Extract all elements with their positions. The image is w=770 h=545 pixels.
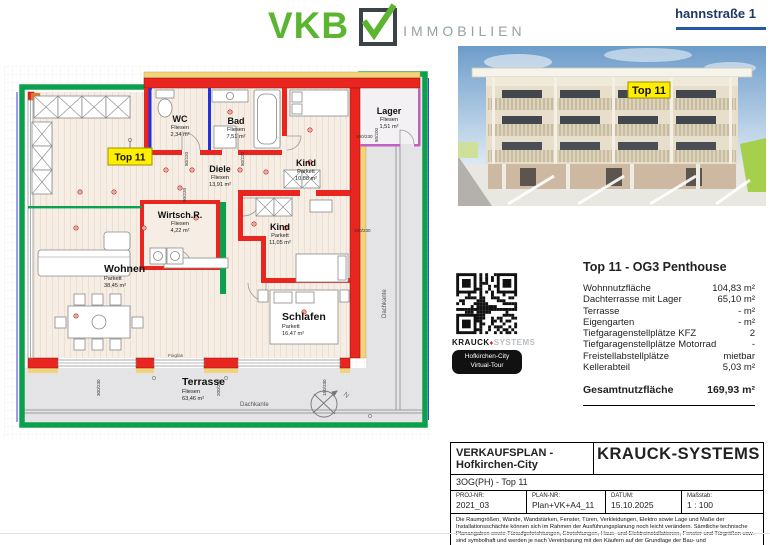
svg-text:80/220: 80/220: [182, 188, 187, 202]
title-block: VERKAUFSPLAN - Hofkirchen-City KRAUCK-SY…: [450, 442, 764, 545]
virtual-tour-badge[interactable]: Hofkirchen-City Virtual-Tour: [452, 350, 522, 374]
detail-row: Tiefgaragenstellplätze KFZ2: [583, 328, 755, 339]
svg-text:Wirtsch.R.: Wirtsch.R.: [158, 210, 202, 220]
vkb-logo-text: VKB: [268, 6, 349, 46]
svg-text:Parkett: Parkett: [271, 233, 289, 239]
plan-subtitle: 3OG(PH) - Top 11: [451, 475, 763, 491]
svg-text:Parkett: Parkett: [104, 276, 122, 282]
svg-text:Fliesen: Fliesen: [211, 175, 229, 181]
page-edge-line: [0, 533, 770, 534]
svg-text:38,45 m²: 38,45 m²: [104, 283, 126, 289]
vkb-logo: VKB IMMOBILIEN: [268, 6, 526, 46]
svg-text:Fliesen: Fliesen: [227, 127, 245, 133]
room-label-kind2: KindParkett11,05 m²: [269, 222, 291, 246]
plan-title: VERKAUFSPLAN - Hofkirchen-City: [451, 443, 594, 474]
company-name: KRAUCK-SYSTEMS: [594, 443, 763, 474]
svg-text:Kind: Kind: [270, 222, 290, 232]
svg-text:16,47 m²: 16,47 m²: [282, 331, 304, 337]
detail-row: Wohnnutzfläche104,83 m²: [583, 283, 755, 294]
svg-text:Fliesen: Fliesen: [171, 125, 189, 131]
field-plan-nr: PLAN-NR: Plan+VK+A4_11: [527, 491, 606, 513]
checkmark-square-icon: [359, 8, 397, 46]
svg-text:80/220: 80/220: [184, 152, 189, 166]
green-wall: [220, 202, 226, 294]
virtual-tour-block: KRAUCK♦SYSTEMS Hofkirchen-City Virtual-T…: [452, 272, 522, 374]
svg-text:150/230: 150/230: [322, 379, 327, 396]
detail-row: Freistellabstellplätzemietbar: [583, 351, 755, 362]
svg-text:Fliesen: Fliesen: [182, 389, 200, 395]
address-underline: [676, 27, 766, 30]
building: Top 11: [472, 68, 752, 204]
svg-text:Fliesen: Fliesen: [171, 221, 189, 227]
svg-text:7,51 m²: 7,51 m²: [227, 134, 246, 140]
sales-plan-page: VKB IMMOBILIEN hannstraße 1: [0, 0, 770, 545]
svg-text:100/230: 100/230: [354, 228, 371, 233]
svg-text:Fliesen: Fliesen: [380, 117, 398, 123]
svg-text:WC: WC: [173, 114, 188, 124]
room-label-kind1: KindParkett10,88 m²: [295, 158, 317, 182]
floor-plan: Top 11 WCFliesen2,34 m² BadFliesen7,51 m…: [4, 66, 434, 438]
svg-text:200/230: 200/230: [216, 379, 221, 396]
detail-row: Kellerabteil5,03 m²: [583, 362, 755, 373]
unit-title: Top 11 - OG3 Penthouse: [583, 260, 755, 274]
room-label-bad: BadFliesen7,51 m²: [227, 116, 246, 140]
krauck-systems-brand: KRAUCK♦SYSTEMS: [452, 338, 522, 347]
dachkante-bottom-label: Dachkante: [240, 402, 269, 408]
field-datum: DATUM: 15.10.2025: [606, 491, 682, 513]
immobilien-logo-text: IMMOBILIEN: [403, 23, 525, 39]
building-photo: Top 11: [458, 46, 766, 206]
svg-text:80/200: 80/200: [374, 128, 379, 142]
svg-text:Bad: Bad: [227, 116, 244, 126]
detail-row: Dachterrasse mit Lager65,10 m²: [583, 294, 755, 305]
svg-text:Top 11: Top 11: [632, 85, 666, 97]
svg-text:Lager: Lager: [377, 106, 402, 116]
photo-top11-label: Top 11: [628, 82, 670, 98]
svg-text:Wohnen: Wohnen: [104, 263, 145, 275]
address-title: hannstraße 1: [675, 6, 756, 21]
svg-text:2,34 m²: 2,34 m²: [171, 132, 190, 138]
room-label-diele: DieleFliesen13,91 m²: [209, 164, 231, 188]
detail-row: Tiefgaragenstellplätze Motorrad-: [583, 339, 755, 350]
field-massstab: Maßstab: 1 : 100: [682, 491, 763, 513]
svg-text:Parkett: Parkett: [282, 324, 300, 330]
dachkante-right-label: Dachkante: [382, 289, 388, 318]
disclaimer-text: Die Raumgrößen, Wände, Wandstärken, Fens…: [451, 514, 763, 545]
svg-text:1,51 m²: 1,51 m²: [380, 124, 399, 130]
svg-text:Kind: Kind: [296, 158, 316, 168]
green-line: [28, 206, 142, 208]
unit-details-panel: Top 11 - OG3 Penthouse Wohnnutzfläche104…: [583, 260, 755, 406]
detail-row: Terrasse- m²: [583, 306, 755, 317]
detail-row: Eigengarten- m²: [583, 317, 755, 328]
svg-text:4,22 m²: 4,22 m²: [171, 228, 190, 234]
room-label-wc: WCFliesen2,34 m²: [171, 114, 190, 138]
svg-text:11,05 m²: 11,05 m²: [269, 240, 291, 246]
svg-text:Diele: Diele: [209, 164, 231, 174]
room-label-lager: LagerFliesen1,51 m²: [377, 106, 402, 130]
svg-text:10,88 m²: 10,88 m²: [295, 176, 317, 182]
svg-text:13,91 m²: 13,91 m²: [209, 182, 231, 188]
svg-text:63,46 m²: 63,46 m²: [182, 396, 204, 402]
svg-text:Top 11: Top 11: [115, 153, 146, 164]
svg-text:Parkett: Parkett: [297, 169, 315, 175]
total-row: Gesamtnutzfläche169,93 m²: [583, 384, 755, 406]
field-proj-nr: PROJ-NR: 2021_03: [451, 491, 527, 513]
svg-text:100/230: 100/230: [356, 134, 373, 139]
svg-text:300/230: 300/230: [96, 379, 101, 396]
lager-wall-bottom: [360, 144, 400, 147]
qr-code[interactable]: [455, 272, 519, 336]
lager-wall-right: [418, 88, 421, 146]
fixglas-label: Fixglas: [168, 353, 184, 359]
svg-text:Schlafen: Schlafen: [282, 311, 326, 323]
svg-text:80/220: 80/220: [240, 152, 245, 166]
